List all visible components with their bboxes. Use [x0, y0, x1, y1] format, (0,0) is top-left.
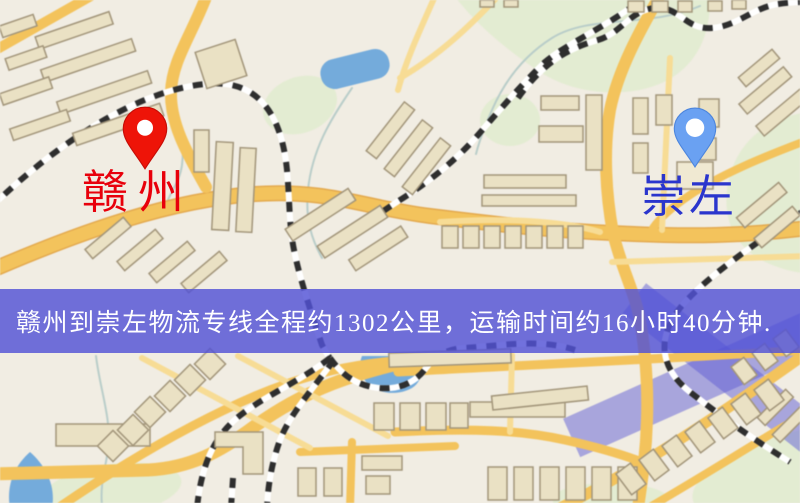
origin-pin-icon[interactable]	[122, 106, 168, 170]
destination-pin-icon[interactable]	[673, 107, 717, 168]
route-map-graphic: 赣州 崇左 赣州到崇左物流专线全程约1302公里，运输时间约16小时40分钟.	[0, 0, 800, 503]
origin-city-label: 赣州	[82, 170, 194, 216]
route-info-banner: 赣州到崇左物流专线全程约1302公里，运输时间约16小时40分钟.	[0, 289, 800, 353]
origin-pin-shape[interactable]	[123, 107, 166, 169]
map-background	[0, 0, 800, 503]
origin-pin-hole	[137, 120, 153, 136]
destination-pin-shape[interactable]	[674, 108, 715, 167]
destination-city-label: 崇左	[641, 175, 737, 220]
route-info-text: 赣州到崇左物流专线全程约1302公里，运输时间约16小时40分钟.	[16, 303, 772, 339]
destination-pin-hole	[686, 118, 705, 137]
